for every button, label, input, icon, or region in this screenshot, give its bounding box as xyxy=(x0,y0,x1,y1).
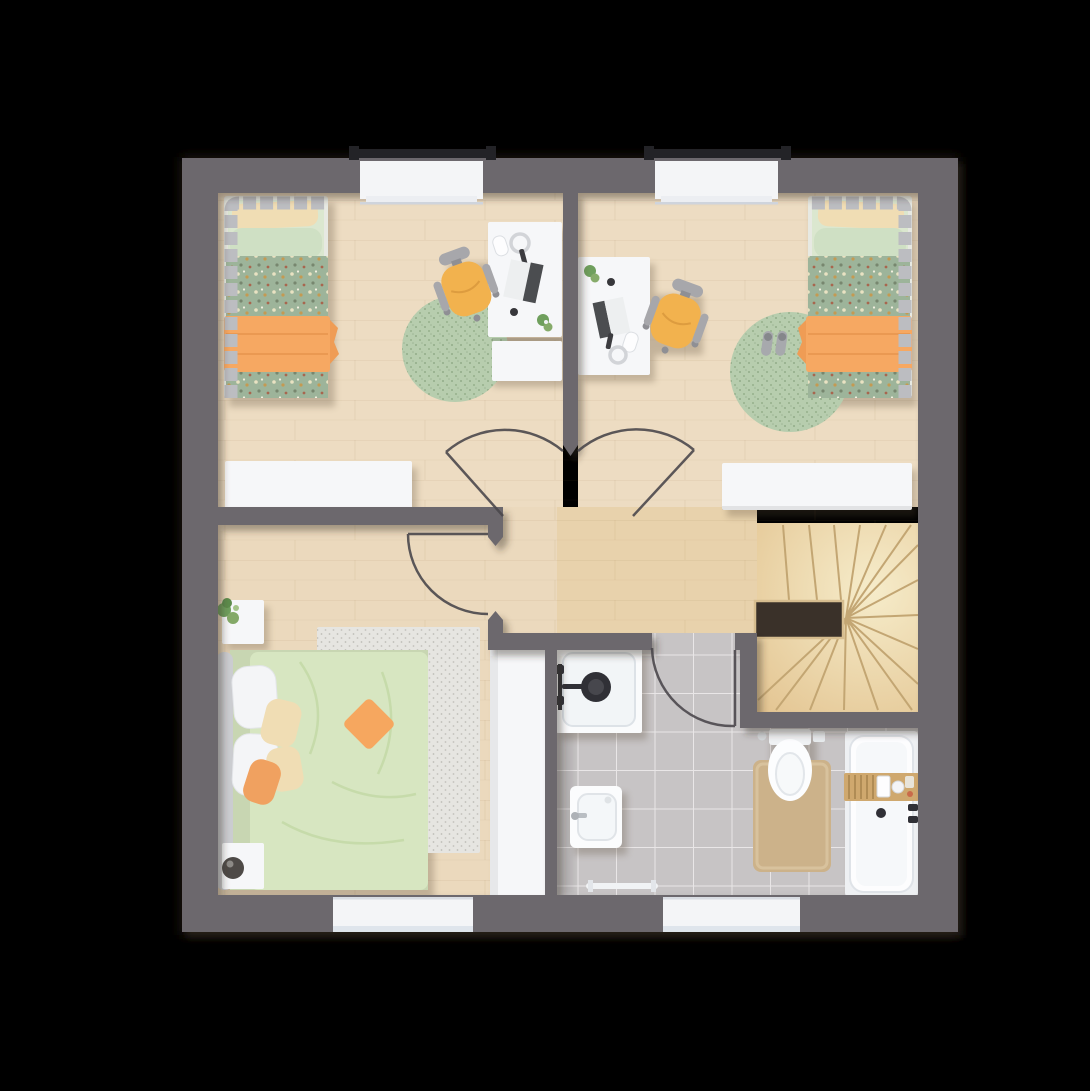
towel-rail xyxy=(586,883,658,889)
pillow-green xyxy=(230,228,322,258)
soap-dish xyxy=(605,797,612,804)
nightstand-top xyxy=(217,598,264,644)
towel-rail-post-2 xyxy=(651,880,656,892)
bathtub xyxy=(844,731,919,897)
window-bathroom xyxy=(663,897,800,932)
shower xyxy=(553,646,642,733)
tray-book xyxy=(877,776,890,797)
window-master-bedroom xyxy=(333,897,473,932)
tub-faucet-2 xyxy=(908,816,918,823)
desk-knob xyxy=(510,308,518,316)
drawer-unit xyxy=(492,341,562,381)
washbasin xyxy=(570,786,622,848)
tray-soap xyxy=(907,791,913,797)
towel-rail-post-1 xyxy=(588,880,593,892)
window-bedroom-right xyxy=(644,146,791,205)
single-bed-left xyxy=(224,196,339,398)
nightstand-bottom xyxy=(222,843,264,889)
bath-caddy-tray xyxy=(844,773,919,801)
desk-right xyxy=(578,257,650,375)
shower-head-center xyxy=(588,679,604,695)
staircase xyxy=(755,523,918,712)
desk-left xyxy=(488,222,562,381)
desk-knob-right xyxy=(607,278,615,286)
single-bed-right xyxy=(797,196,912,398)
blanket-orange xyxy=(224,316,330,372)
wardrobe-edge-shade xyxy=(490,645,498,897)
tub-faucet-1 xyxy=(908,804,918,811)
tray-bottle xyxy=(905,776,914,788)
stair-void xyxy=(755,601,843,638)
dresser-right xyxy=(722,463,912,510)
tub-drain xyxy=(876,808,886,818)
window-bedroom-left xyxy=(349,146,496,205)
vase xyxy=(222,857,244,879)
tray-candle xyxy=(892,781,904,793)
wardrobe xyxy=(490,645,545,897)
basin-faucet-base xyxy=(571,812,579,820)
toilet-seat xyxy=(776,753,804,795)
dresser-left xyxy=(225,461,412,513)
window-lintel xyxy=(352,149,493,158)
floor-plan-canvas xyxy=(0,0,1090,1091)
dresser-right-edge xyxy=(722,506,912,510)
